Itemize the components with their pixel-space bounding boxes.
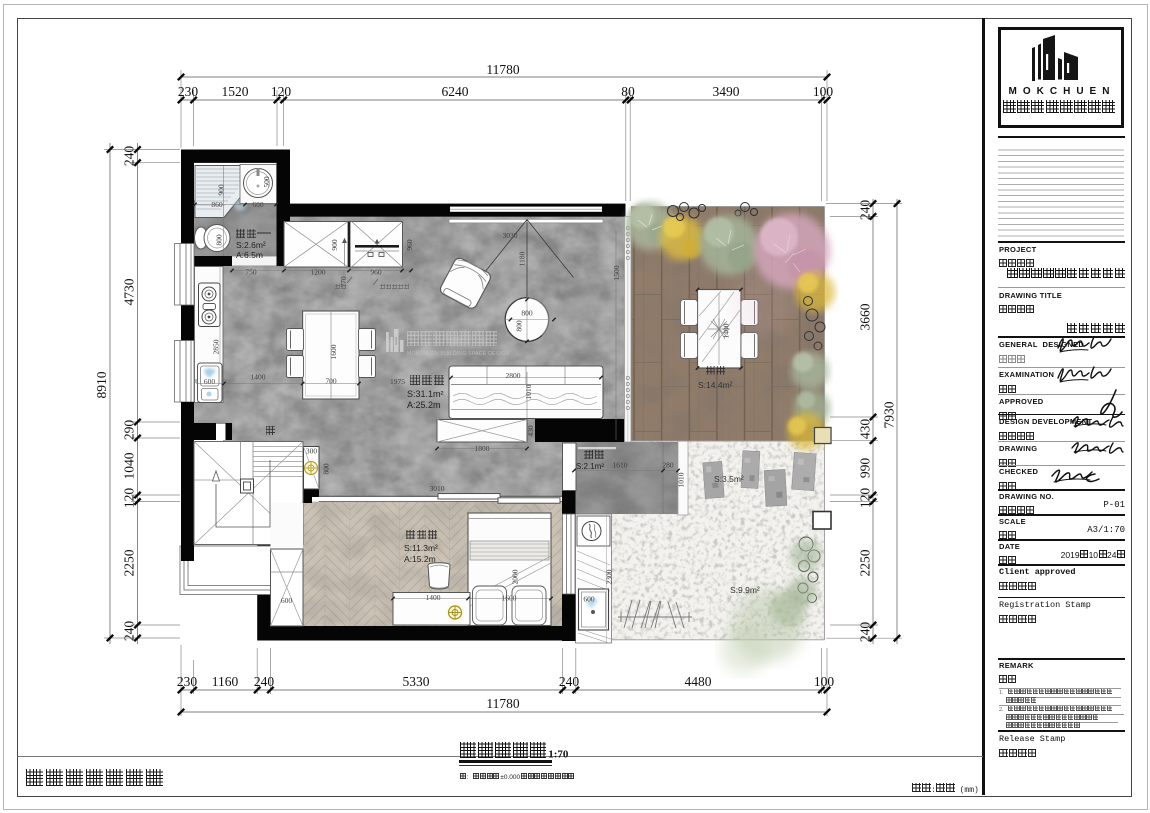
svg-text:120: 120 <box>122 488 137 509</box>
svg-text:MOKCHUEN: MOKCHUEN <box>1009 86 1116 97</box>
svg-text:800: 800 <box>521 309 533 318</box>
svg-text:8910: 8910 <box>94 371 109 398</box>
svg-text:3030: 3030 <box>503 231 518 240</box>
svg-text:800: 800 <box>515 320 524 332</box>
svg-text:S:2.1m²: S:2.1m² <box>576 462 604 471</box>
svg-text:1975: 1975 <box>390 377 405 386</box>
svg-text:240: 240 <box>122 146 137 167</box>
svg-text:2250: 2250 <box>122 549 137 576</box>
svg-text:5330: 5330 <box>403 674 430 689</box>
svg-text:900: 900 <box>330 239 339 251</box>
svg-text:S:11.3m²: S:11.3m² <box>404 543 438 553</box>
svg-text:1610: 1610 <box>613 461 628 470</box>
svg-text:600: 600 <box>204 377 216 386</box>
svg-text:1200: 1200 <box>311 268 326 277</box>
svg-text:1520: 1520 <box>222 84 249 99</box>
svg-text:2000: 2000 <box>511 569 520 584</box>
svg-text:3660: 3660 <box>858 303 873 330</box>
svg-text:800: 800 <box>322 463 331 475</box>
svg-text:6240: 6240 <box>442 84 469 99</box>
svg-text:3010: 3010 <box>430 484 445 493</box>
svg-text:2300: 2300 <box>605 569 614 584</box>
svg-text:4480: 4480 <box>685 674 712 689</box>
svg-text:1180: 1180 <box>518 251 527 266</box>
svg-text:S:2.6m²: S:2.6m² <box>236 240 266 250</box>
svg-text:4730: 4730 <box>122 278 137 305</box>
svg-text:290: 290 <box>122 420 137 441</box>
svg-text:A:25.2m: A:25.2m <box>407 400 441 410</box>
svg-text:430: 430 <box>526 425 535 437</box>
svg-text:S:31.1m²: S:31.1m² <box>407 389 444 399</box>
svg-text:600: 600 <box>281 596 293 605</box>
svg-text:300: 300 <box>306 447 318 456</box>
svg-text:1500: 1500 <box>612 265 621 280</box>
svg-text:1160: 1160 <box>212 674 239 689</box>
svg-text:7930: 7930 <box>882 401 897 428</box>
svg-text:1010: 1010 <box>677 472 686 487</box>
svg-text:MOKCHUEN BUILDING SPACE DESIGN: MOKCHUEN BUILDING SPACE DESIGN <box>407 351 509 357</box>
svg-text:230: 230 <box>178 84 199 99</box>
svg-text:240: 240 <box>122 621 137 642</box>
svg-text:120: 120 <box>858 488 873 509</box>
svg-text:3490: 3490 <box>713 84 740 99</box>
svg-text:S:14.4m²: S:14.4m² <box>698 380 733 390</box>
svg-text:1040: 1040 <box>122 452 137 479</box>
svg-text:80: 80 <box>621 84 635 99</box>
svg-text:120: 120 <box>271 84 292 99</box>
svg-text:900: 900 <box>217 184 226 196</box>
svg-text:1400: 1400 <box>722 323 731 338</box>
svg-text:500: 500 <box>262 176 271 188</box>
svg-text:2850: 2850 <box>212 339 221 354</box>
svg-text:1600: 1600 <box>502 594 517 603</box>
svg-text:11780: 11780 <box>486 696 519 711</box>
svg-text:230: 230 <box>177 674 198 689</box>
svg-text:A:6.5m: A:6.5m <box>236 250 263 260</box>
svg-text:1400: 1400 <box>426 593 441 602</box>
svg-text:750: 750 <box>245 268 257 277</box>
svg-text:990: 990 <box>858 458 873 479</box>
svg-text:240: 240 <box>858 200 873 221</box>
svg-text:S:3.5m²: S:3.5m² <box>714 474 744 484</box>
svg-text:240: 240 <box>559 674 580 689</box>
svg-text:960: 960 <box>370 268 382 277</box>
svg-text:A:15.2m: A:15.2m <box>404 554 436 564</box>
svg-text:240: 240 <box>858 622 873 643</box>
svg-text:2800: 2800 <box>506 371 521 380</box>
svg-text:1600: 1600 <box>329 344 338 359</box>
svg-text:430: 430 <box>858 419 873 440</box>
svg-text:2250: 2250 <box>858 549 873 576</box>
svg-text:280: 280 <box>662 461 674 470</box>
svg-text:1400: 1400 <box>251 373 266 382</box>
svg-text:1010: 1010 <box>524 384 533 399</box>
svg-text:960: 960 <box>405 239 414 251</box>
svg-text:100: 100 <box>814 674 835 689</box>
svg-text:11780: 11780 <box>486 62 519 77</box>
svg-text:100: 100 <box>813 84 834 99</box>
svg-text:S:9.9m²: S:9.9m² <box>730 585 760 595</box>
svg-text:600: 600 <box>583 595 595 604</box>
svg-text:240: 240 <box>254 674 275 689</box>
svg-text:800: 800 <box>215 234 224 246</box>
